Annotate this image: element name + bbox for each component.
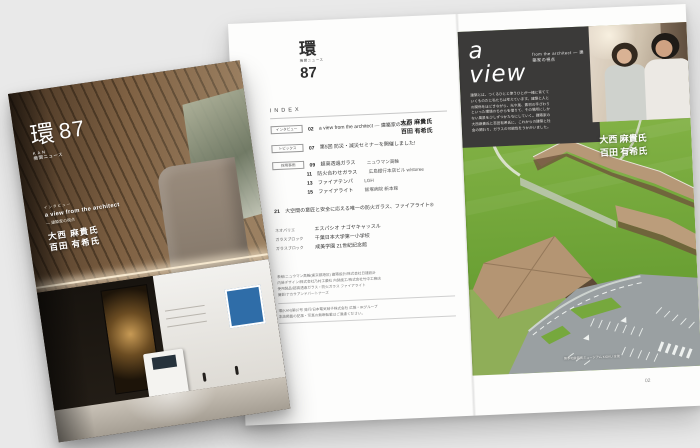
architect-woman-body: [604, 64, 649, 122]
index-heading: INDEX: [270, 107, 302, 114]
credits-block: 表紙/ニュウマン高輪(東京都港区) 建築設計/株式会社日建設計 内装デザイン/株…: [277, 266, 456, 298]
colophon-block: 環(KAN)第87号 発行/日本電気硝子株式会社 広報・IRグループ 本誌掲載の…: [278, 300, 456, 320]
row-title: 大空間の意匠と安全に応える唯一の防火ガラス、ファイアライト®: [285, 202, 434, 214]
page-ref: 02: [308, 126, 314, 132]
article-subtitle: from the architect ― 建築家の視点: [532, 49, 587, 63]
index-row: 21 大空間の意匠と安全に応える唯一の防火ガラス、ファイアライト®: [274, 200, 453, 215]
row-project: ニュウマン高輪: [367, 158, 399, 164]
row-title: 防火合わせガラス: [317, 170, 357, 178]
page-number: 02: [645, 378, 651, 384]
logo-subtitle: 機関ニュース: [300, 57, 334, 63]
page-ref: 11: [307, 171, 313, 177]
page-ref: 15: [307, 189, 313, 195]
article-page: a view from the architect ― 建築家の視点 建築とは、…: [457, 4, 700, 416]
interviewee-names: 大西 麻貴氏 百田 有希氏: [400, 118, 432, 136]
row-title: 千葉日本大学第一小学校: [315, 233, 370, 241]
logo-issue-number: 87: [300, 64, 335, 81]
product-label: ガラスブロック: [275, 236, 309, 243]
interviewee-name: 百田 有希氏: [401, 127, 433, 137]
cover-logo-kanji: 環: [29, 122, 56, 149]
product-label: ガラスブロック: [276, 245, 310, 252]
row-title: 第5回 防災・減災セミナーを開催しました!: [320, 140, 416, 150]
magazine-mockup-scene: 環 機関ニュース 87 INDEX インタビュー 02 a view from …: [0, 0, 700, 448]
row-title: 成美学園 21世紀記念館: [315, 242, 367, 250]
architect-name: 百田 有希氏: [600, 145, 648, 160]
category-tag: トピックス: [271, 144, 303, 153]
architects-photo: [588, 22, 690, 122]
article-title: a view: [468, 37, 529, 88]
row-title: 超高透過ガラス: [320, 160, 355, 168]
architect-man-body: [644, 58, 691, 122]
index-row: トピックス 07 第5回 防災・減災セミナーを開催しました!: [271, 137, 450, 153]
page-ref: 21: [274, 209, 280, 215]
magazine-cover: 環 87 KAN 機関ニュース インタビュー a view from the a…: [8, 60, 290, 442]
magazine-spread: 環 機関ニュース 87 INDEX インタビュー 02 a view from …: [228, 4, 700, 426]
cover-logo: 環 87 KAN 機関ニュース: [29, 117, 89, 162]
architect-names: 大西 麻貴氏 百田 有希氏: [599, 132, 647, 160]
cover-logo-issue: 87: [57, 117, 86, 143]
category-tag: 採用事例: [272, 161, 304, 170]
logo-kanji: 環: [299, 39, 334, 57]
article-title-box: a view from the architect ― 建築家の視点 建築とは、…: [458, 26, 601, 148]
page-ref: 13: [307, 180, 313, 186]
page-ref: 07: [309, 145, 315, 151]
category-tag: インタビュー: [271, 125, 303, 134]
row-title: ファイアテンパ: [318, 179, 353, 187]
index-logo: 環 機関ニュース 87: [299, 39, 335, 81]
row-title: a view from the architect ― 建築家の視点: [319, 122, 411, 132]
row-project: 飯塚病院 新本館: [365, 186, 399, 192]
row-project: LGH: [364, 178, 374, 183]
product-label: ネオパリエ: [275, 227, 309, 234]
article-lead-text: 建築とは、つくるひとと使うひとが一緒に育てて いくものだと私たちは考えています。…: [470, 88, 590, 134]
row-title: ファイアライト: [318, 188, 353, 196]
row-project: 広島銀行本店ビル w/storee: [368, 167, 424, 174]
page-ref: 09: [309, 162, 315, 168]
